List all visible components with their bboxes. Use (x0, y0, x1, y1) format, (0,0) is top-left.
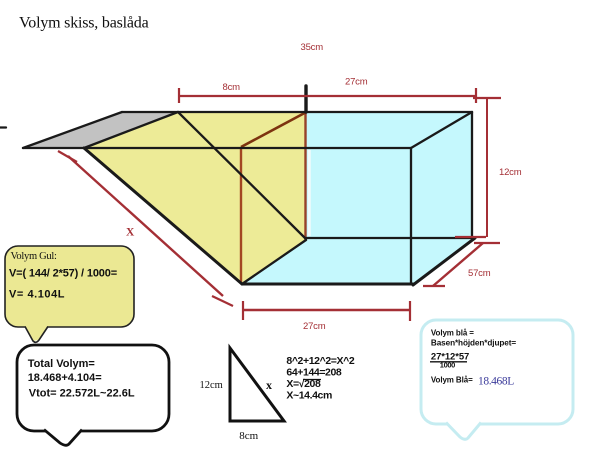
svg-text:18.468+4.104=: 18.468+4.104= (28, 372, 102, 384)
svg-text:64+144=208: 64+144=208 (286, 367, 342, 379)
svg-text:Volym skiss, baslåda: Volym skiss, baslåda (19, 15, 149, 32)
svg-text:27cm: 27cm (303, 321, 326, 332)
svg-text:Volym Gul:: Volym Gul: (11, 251, 57, 262)
svg-text:Volym blå =: Volym blå = (431, 329, 474, 338)
svg-text:Basen*höjden*djupet=: Basen*höjden*djupet= (431, 339, 516, 348)
svg-text:57cm: 57cm (468, 268, 491, 279)
svg-text:12cm: 12cm (499, 167, 522, 178)
svg-text:8^2+12^2=X^2: 8^2+12^2=X^2 (286, 355, 354, 367)
svg-text:8cm: 8cm (223, 82, 241, 93)
svg-text:x: x (266, 378, 272, 392)
svg-text:12cm: 12cm (200, 380, 223, 391)
svg-text:18.468L: 18.468L (478, 376, 514, 388)
svg-text:V= 4.104L: V= 4.104L (9, 289, 65, 301)
svg-text:8cm: 8cm (239, 430, 258, 442)
svg-text:Vtot= 22.572L~22.6L: Vtot= 22.572L~22.6L (29, 388, 135, 400)
svg-text:X~14.4cm: X~14.4cm (286, 390, 332, 402)
svg-text:V=( 144/ 2*57) / 1000=: V=( 144/ 2*57) / 1000= (9, 268, 117, 280)
svg-text:X: X (126, 227, 135, 239)
svg-text:35cm: 35cm (301, 42, 324, 53)
svg-text:27cm: 27cm (345, 77, 368, 88)
svg-text:Total Volym=: Total Volym= (28, 358, 95, 370)
svg-text:Volym Blå=: Volym Blå= (431, 376, 473, 385)
